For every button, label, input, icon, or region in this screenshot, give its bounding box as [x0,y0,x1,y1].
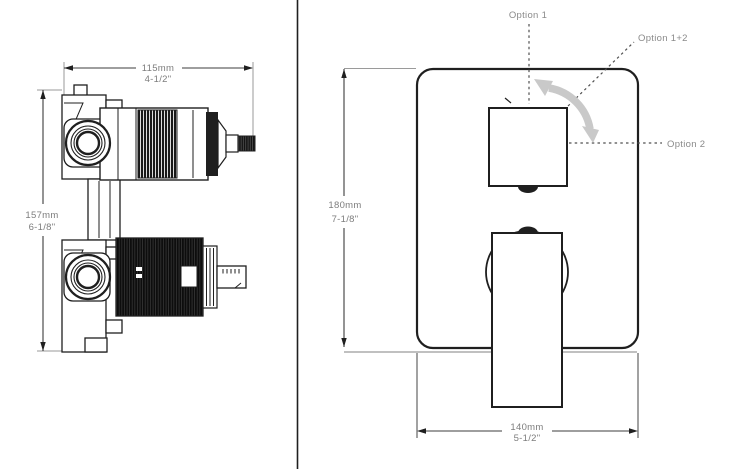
diverter-knob [489,108,567,193]
upper-body-end-cap [206,112,218,176]
dim-arrow-left [64,65,73,70]
dim-arrow-right [629,428,638,433]
handle-lever [492,233,562,407]
lower-port-bore [77,266,99,288]
dim-arrow-left [417,428,426,433]
option2-label: Option 2 [667,139,705,150]
upper-stem-base [226,135,238,152]
dim-arrow-up [40,90,45,99]
dim-arrow-up [341,69,346,78]
upper-splined-stem [238,136,255,151]
upper-port-bore [77,132,99,154]
height-dim-mm-label: 157mm [25,210,58,221]
plate-height-dimension: 180mm 7-1/8" [328,69,361,347]
dim-arrow-right [244,65,253,70]
rough-in-valve-side-view: 115mm 4-1/2" 157mm 6-1/8" [25,62,255,352]
height-dim-inch-label: 6-1/8" [29,222,56,233]
diverter-knob-square [489,108,567,186]
dim-arrow-down [40,342,45,351]
plate-width-inch-label: 5-1/2" [514,433,541,444]
width-dim-inch-label: 4-1/2" [145,74,172,85]
width-dim-mm-label: 115mm [142,63,174,74]
lever-handle [486,227,568,407]
spec-sheet-page: 115mm 4-1/2" 157mm 6-1/8" [0,0,750,469]
trim-plate-front-view: 180mm 7-1/8" Option 1 [328,10,705,444]
upper-bonnet [218,120,226,168]
plate-height-inch-label: 7-1/8" [332,214,359,225]
option1-label: Option 1 [509,10,547,21]
dim-arrow-down [341,338,346,347]
lower-cylinder-slot [181,266,197,287]
valve-technical-drawing: 115mm 4-1/2" 157mm 6-1/8" [0,0,750,469]
upper-knurled-band [138,110,177,178]
plate-width-mm-label: 140mm [510,422,543,433]
option1-2-label: Option 1+2 [638,33,688,44]
plate-height-mm-label: 180mm [328,200,361,211]
